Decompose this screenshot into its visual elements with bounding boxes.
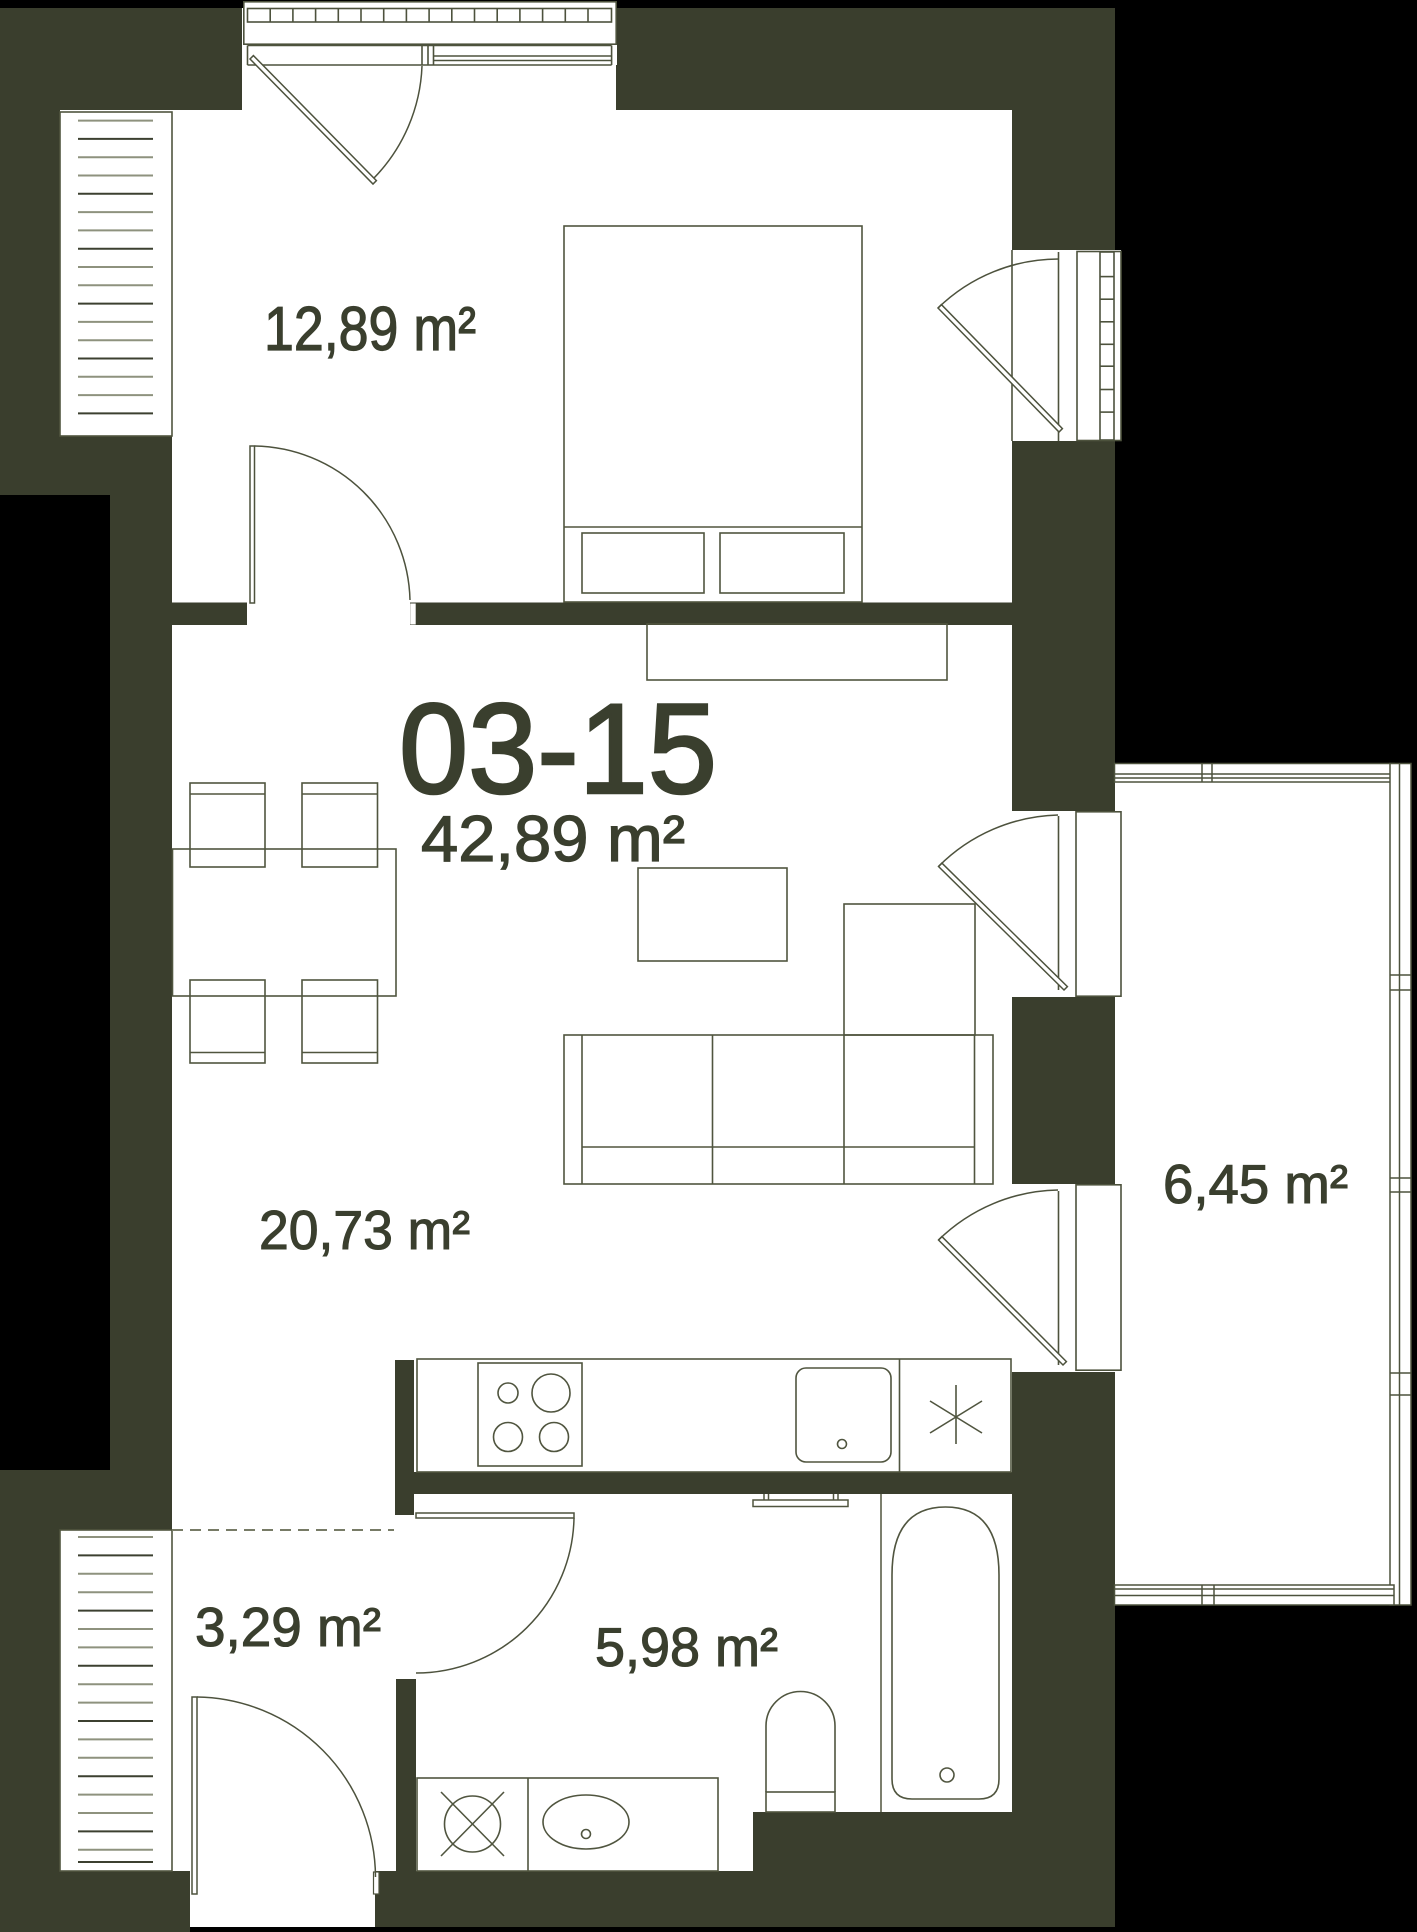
svg-text:03-15: 03-15 bbox=[399, 678, 717, 821]
svg-text:5,98 m²: 5,98 m² bbox=[595, 1616, 778, 1678]
svg-text:3,29 m²: 3,29 m² bbox=[195, 1596, 381, 1658]
svg-text:42,89 m²: 42,89 m² bbox=[421, 802, 685, 875]
svg-text:20,73 m²: 20,73 m² bbox=[259, 1199, 470, 1261]
svg-text:12,89 m²: 12,89 m² bbox=[264, 295, 476, 364]
svg-text:6,45 m²: 6,45 m² bbox=[1163, 1153, 1348, 1215]
